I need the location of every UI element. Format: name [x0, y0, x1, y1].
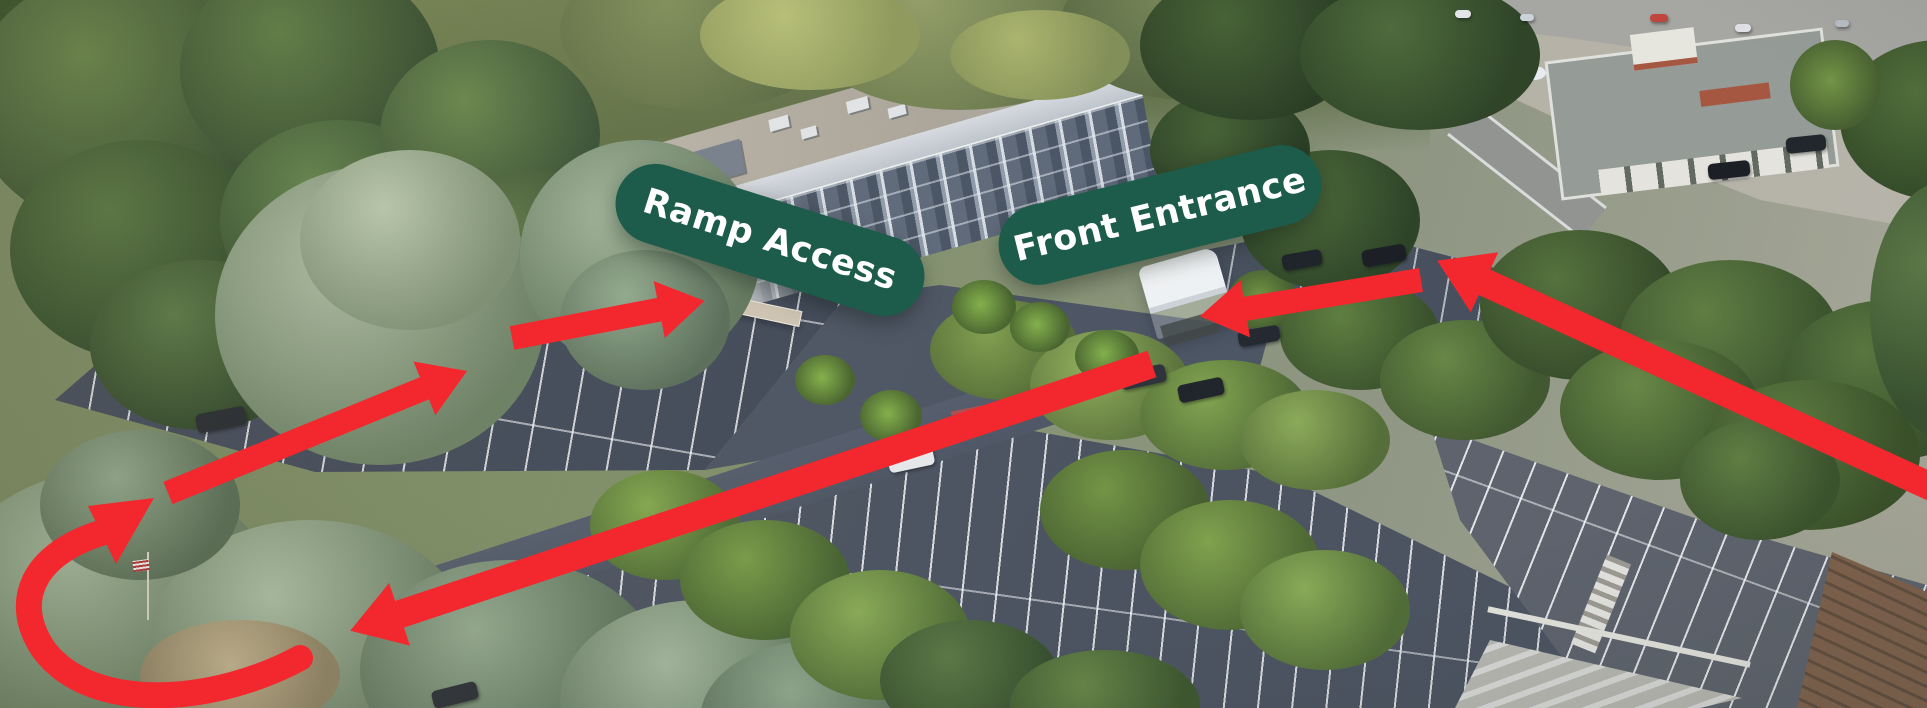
eucalyptus-tree: [300, 150, 520, 330]
rooftop-hvac-unit: [846, 96, 869, 114]
lawn-shrub: [1240, 390, 1390, 490]
rooftop-hvac-unit: [768, 115, 789, 132]
rooftop-hvac-unit: [888, 104, 907, 119]
palm-tree: [1010, 302, 1070, 352]
car: [1735, 24, 1751, 32]
palm-tree: [1790, 40, 1880, 130]
aerial-photo: Ramp Access Front Entrance: [0, 0, 1927, 708]
car: [1455, 10, 1471, 18]
car: [1835, 20, 1849, 27]
car: [1650, 14, 1668, 22]
palm-tree: [952, 280, 1016, 334]
arrow-head: [1195, 280, 1250, 345]
palm-tree: [795, 355, 855, 405]
flower-patch: [950, 10, 1130, 100]
car: [1520, 14, 1534, 21]
rooftop-hvac-unit: [800, 125, 817, 139]
palm-island: [1240, 550, 1410, 670]
loop-back-curved-arrow-icon: [0, 430, 340, 708]
